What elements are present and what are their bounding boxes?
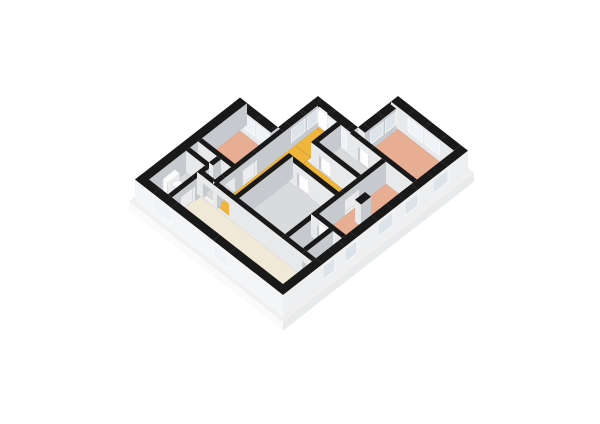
floorplan-3d-render [0, 0, 600, 424]
floorplan-viewport [0, 0, 600, 424]
